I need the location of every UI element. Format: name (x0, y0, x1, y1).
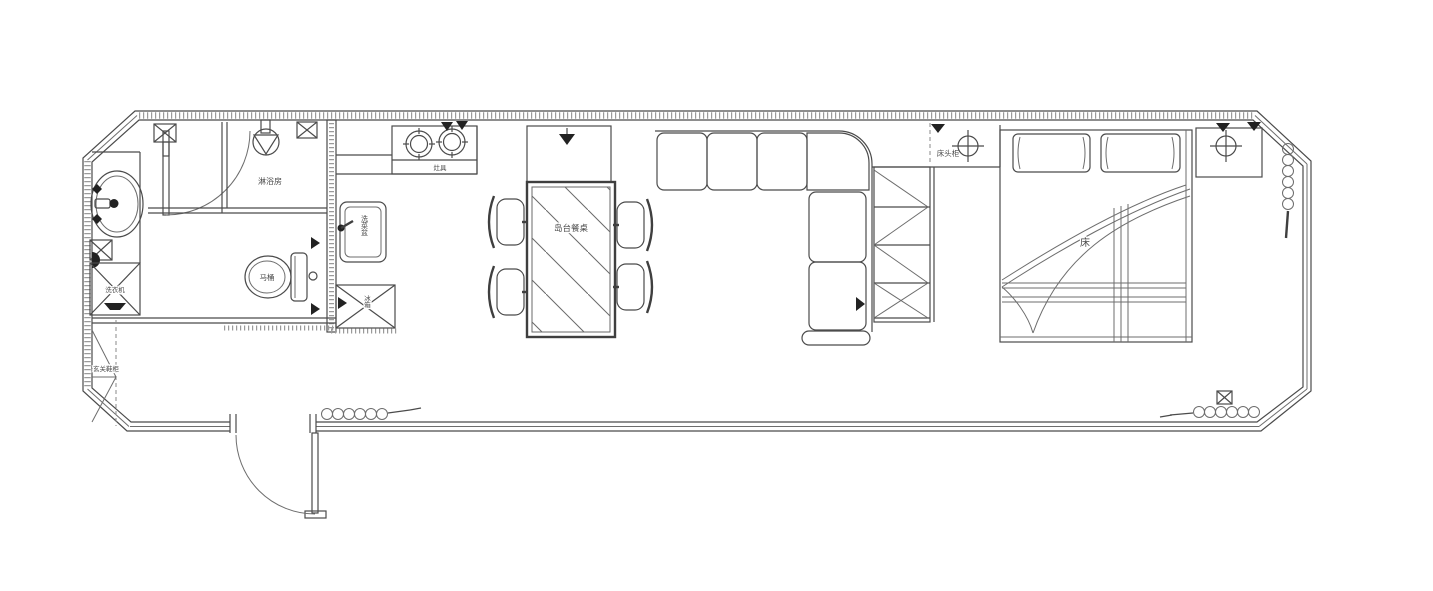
shower-room-label: 淋浴房 (258, 176, 282, 186)
island-dining: 岛台餐桌 (489, 126, 652, 337)
shelf-cabinet (874, 167, 934, 322)
valve-icon (92, 214, 102, 224)
door-foot (305, 511, 326, 518)
floor-drain-icon (253, 120, 279, 155)
wall-lamp-icon (311, 237, 320, 249)
curtain-icon (1160, 391, 1260, 418)
wall-lamp-icon (311, 303, 320, 315)
dining-chair (613, 199, 652, 251)
bed: 床 (1000, 130, 1192, 342)
floorplan: 淋浴房 马桶 (0, 0, 1433, 591)
bathroom-door (163, 131, 250, 215)
island-table-label: 岛台餐桌 (554, 223, 589, 233)
bedside-cabinet-label: 床头柜 (937, 148, 960, 158)
pillow (1101, 134, 1180, 172)
faucet-icon (95, 199, 110, 208)
wall-lamp-icon (338, 297, 347, 309)
spotlight-icon (931, 124, 945, 133)
dining-chair (489, 266, 528, 318)
dining-chair (489, 196, 528, 248)
valve-icon (92, 184, 102, 194)
ceiling-lamp-icon (1210, 130, 1242, 162)
bed-label: 床 (1080, 236, 1090, 249)
dining-chair (613, 261, 652, 313)
toilet-label: 马桶 (260, 272, 275, 282)
washing-machine-label: 洗衣机 (105, 285, 125, 294)
bedside-table-right (1196, 122, 1262, 177)
island-table: 岛台餐桌 (527, 182, 615, 337)
exhaust-fan-icon (154, 124, 176, 156)
washing-machine: 洗衣机 (90, 263, 140, 315)
fridge: 冰箱 (336, 285, 395, 328)
stove-label: 灶具 (434, 163, 448, 172)
pendant-lamp-icon (559, 134, 575, 145)
sofa-armrest (802, 331, 870, 345)
entry-door (230, 414, 326, 518)
kitchen: 灶具 洗菜盆 冰箱 (331, 121, 477, 331)
curtain-icon (1283, 144, 1294, 239)
entry-shoe-cabinet: 玄关鞋柜 (92, 320, 120, 426)
pillow (1013, 134, 1090, 172)
door-leaf (312, 433, 318, 513)
toilet: 马桶 (245, 253, 317, 301)
door-swing-arc (236, 435, 315, 514)
shower-room: 淋浴房 (148, 120, 327, 213)
curtain-icon (322, 408, 422, 420)
washbasin (91, 171, 143, 237)
outer-walls (83, 111, 1311, 431)
floorplan-svg: 淋浴房 马桶 (0, 0, 1433, 591)
kitchen-sink: 洗菜盆 (338, 202, 387, 262)
vanity-area: 洗衣机 (90, 152, 143, 315)
exhaust-fan-icon (297, 122, 317, 138)
blanket-stripes (1002, 204, 1186, 342)
bedside-cabinet: 床头柜 (872, 123, 1000, 167)
wall-lamp-icon (856, 297, 865, 311)
spotlight-icon (1247, 122, 1261, 131)
fridge-label: 冰箱 (363, 294, 371, 310)
stove: 灶具 (392, 126, 477, 174)
overhead-cabinet (527, 126, 611, 182)
sofa (655, 131, 872, 345)
entry-cabinet-label: 玄关鞋柜 (93, 364, 120, 373)
blanket-fold (1002, 185, 1190, 333)
kitchen-sink-label: 洗菜盆 (361, 214, 369, 236)
drain-valve-icon (104, 303, 126, 310)
wall-box-icon (1217, 391, 1232, 404)
